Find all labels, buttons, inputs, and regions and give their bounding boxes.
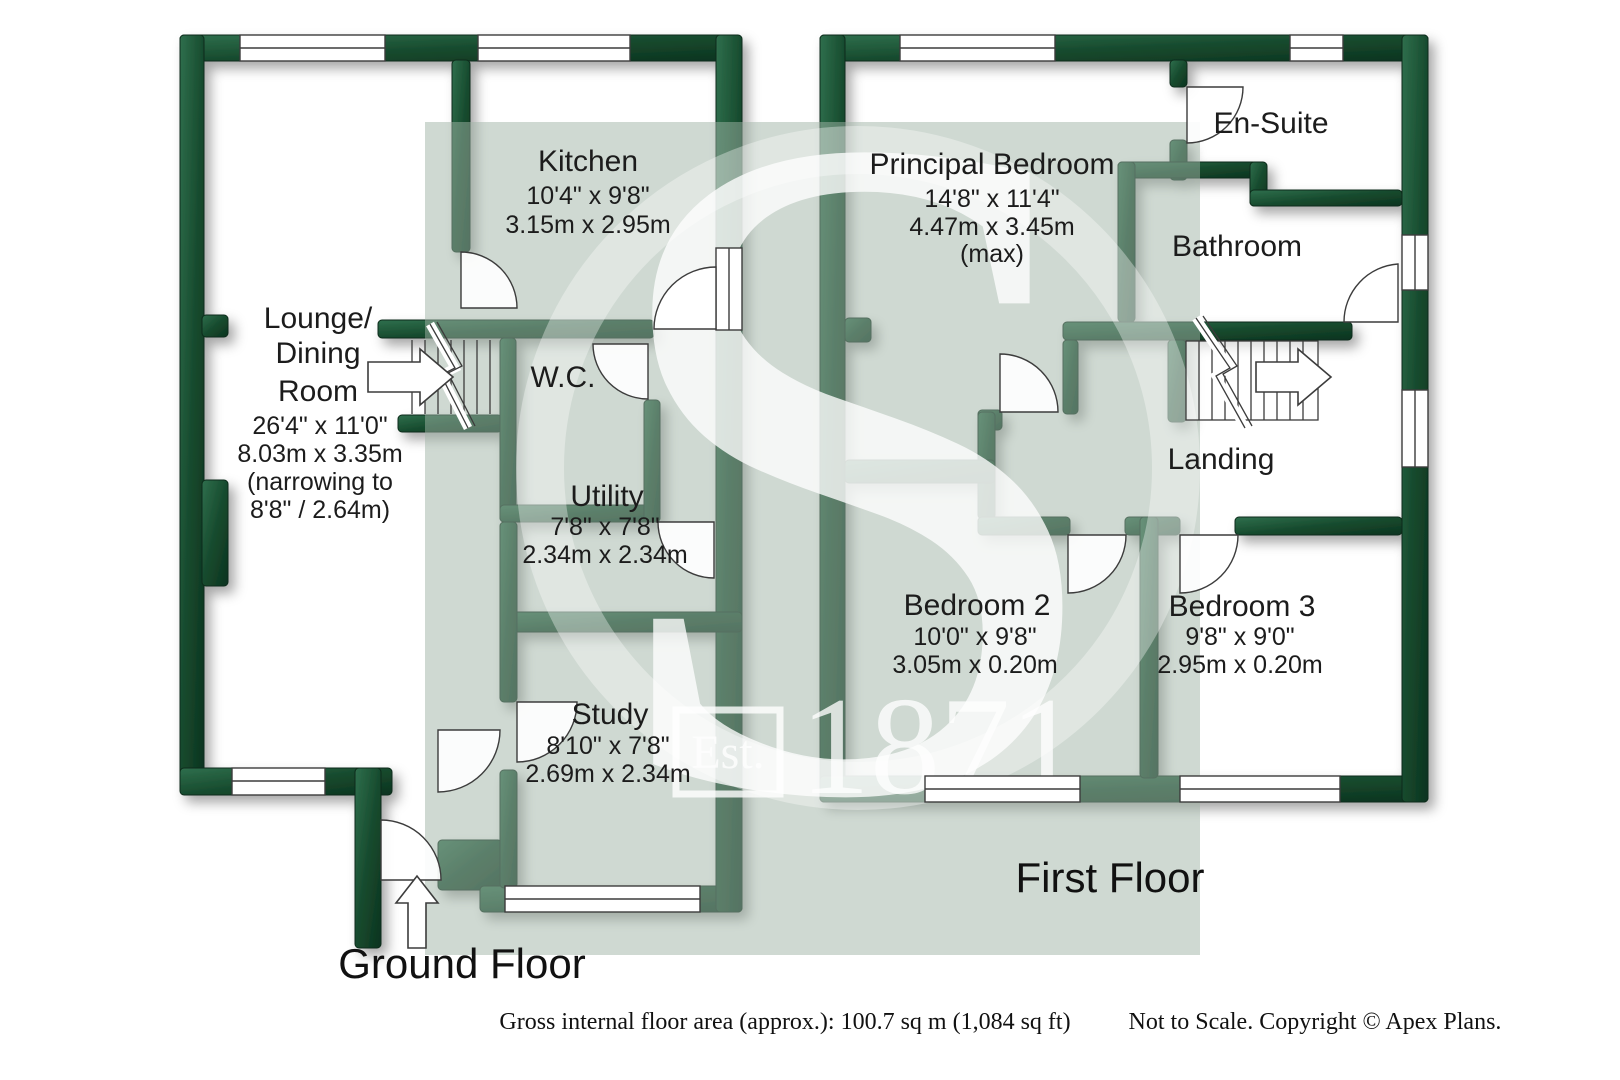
watermark-est-label: Est. [691,726,764,779]
room-dim-kitchen-ft: 10'4" x 9'8" [526,182,649,210]
room-label-wc: W.C. [531,361,596,394]
room-label-ensuite: En-Suite [1213,107,1328,140]
room-dim-utility-m: 2.34m x 2.34m [522,541,687,569]
room-label-kitchen: Kitchen [538,145,638,178]
floorplan-canvas: S Est. 1871 [0,0,1620,1080]
footer-scale-copyright: Not to Scale. Copyright © Apex Plans. [1129,1009,1502,1035]
room-label-utility: Utility [570,480,643,513]
room-label-lounge-line2: Dining [275,337,360,370]
room-label-bed2: Bedroom 2 [904,589,1051,622]
room-label-lounge-line1: Lounge/ [264,302,373,335]
room-label-principal: Principal Bedroom [869,148,1114,181]
room-note-lounge-2: 8'8" / 2.64m) [250,496,390,524]
room-label-landing: Landing [1168,443,1275,476]
room-label-study: Study [572,698,649,731]
room-dim-kitchen-m: 3.15m x 2.95m [505,211,670,239]
room-label-bathroom: Bathroom [1172,230,1302,263]
room-label-bed3: Bedroom 3 [1169,590,1316,623]
room-dim-lounge-m: 8.03m x 3.35m [237,440,402,468]
room-note-lounge-1: (narrowing to [247,468,393,496]
room-dim-bed2-m: 3.05m x 0.20m [892,651,1057,679]
ground-floor-title: Ground Floor [338,940,585,987]
first-floor-title: First Floor [1016,854,1205,901]
room-dim-study-m: 2.69m x 2.34m [525,760,690,788]
room-dim-bed3-m: 2.95m x 0.20m [1157,651,1322,679]
room-dim-lounge-ft: 26'4" x 11'0" [252,412,387,440]
floorplan-page: S Est. 1871 [0,0,1620,1080]
room-dim-principal-ft: 14'8" x 11'4" [924,185,1059,213]
room-label-lounge-line3: Room [278,375,358,408]
footer-floor-area: Gross internal floor area (approx.): 100… [499,1009,1070,1035]
room-note-principal: (max) [960,240,1024,268]
room-dim-study-ft: 8'10" x 7'8" [546,732,669,760]
room-dim-bed2-ft: 10'0" x 9'8" [913,623,1036,651]
room-dim-utility-ft: 7'8" x 7'8" [550,513,659,541]
room-dim-bed3-ft: 9'8" x 9'0" [1185,623,1294,651]
room-dim-principal-m: 4.47m x 3.45m [909,213,1074,241]
